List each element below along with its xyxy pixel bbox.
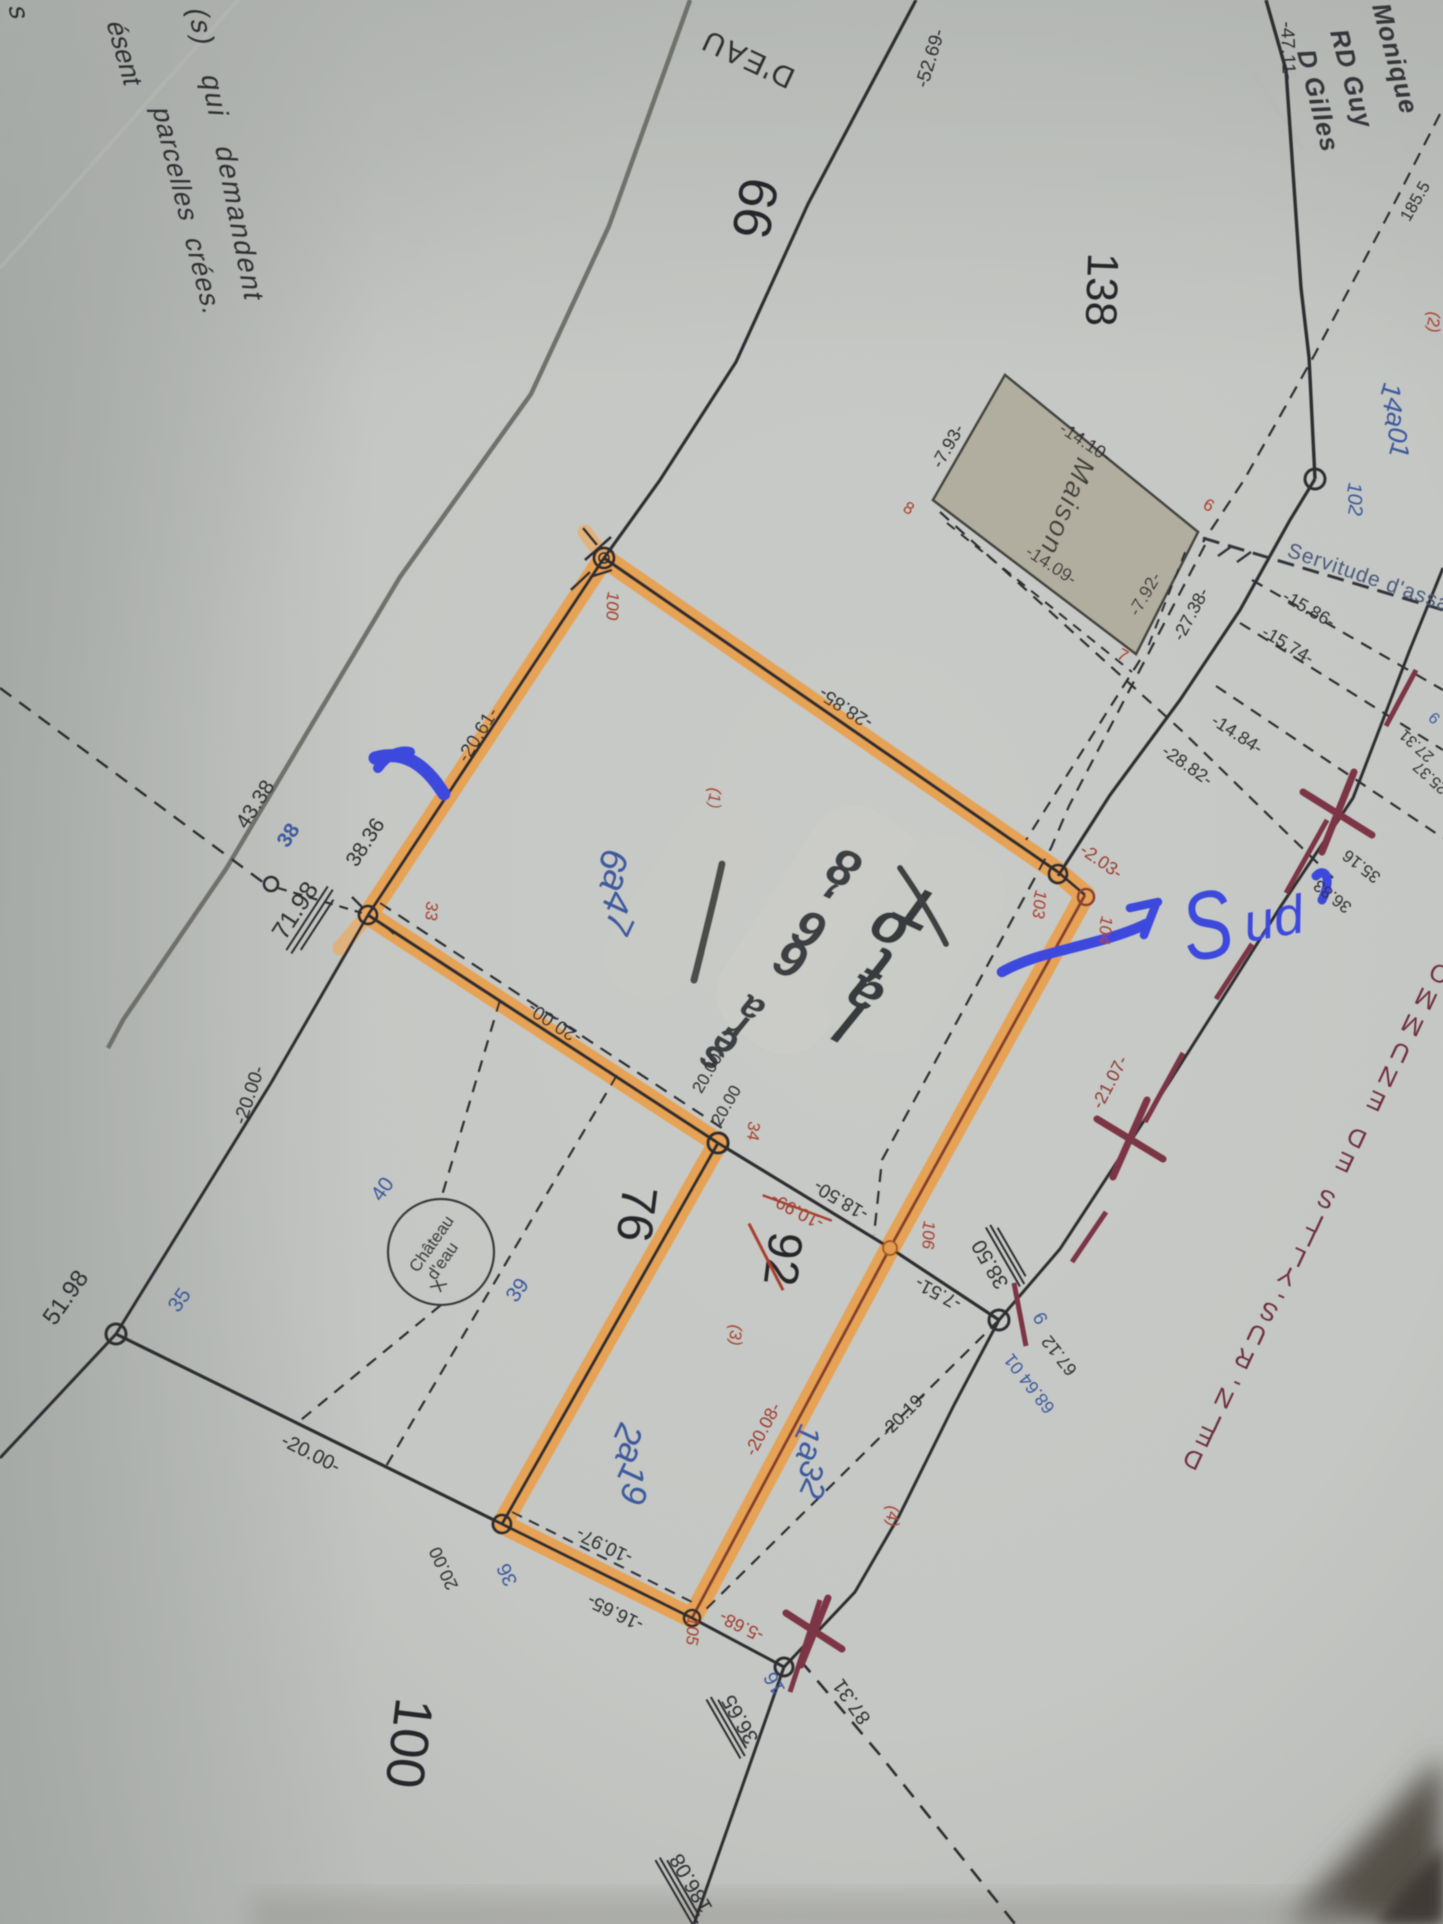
svg-text:66: 66 xyxy=(720,173,790,243)
svg-text:92: 92 xyxy=(753,1229,812,1288)
svg-text:-47.11-: -47.11- xyxy=(1276,21,1299,80)
svg-text:ud: ud xyxy=(1239,884,1311,954)
svg-text:138: 138 xyxy=(1076,252,1128,327)
svg-text:103: 103 xyxy=(1028,888,1051,922)
svg-text:s: s xyxy=(2,6,37,19)
svg-text:100: 100 xyxy=(374,1695,445,1792)
svg-text:100: 100 xyxy=(602,590,624,623)
svg-text:105: 105 xyxy=(682,1615,704,1648)
svg-text:76: 76 xyxy=(606,1183,668,1245)
svg-text:102: 102 xyxy=(1342,479,1367,519)
svg-text:104: 104 xyxy=(1094,914,1117,948)
svg-text:106: 106 xyxy=(918,1219,940,1252)
